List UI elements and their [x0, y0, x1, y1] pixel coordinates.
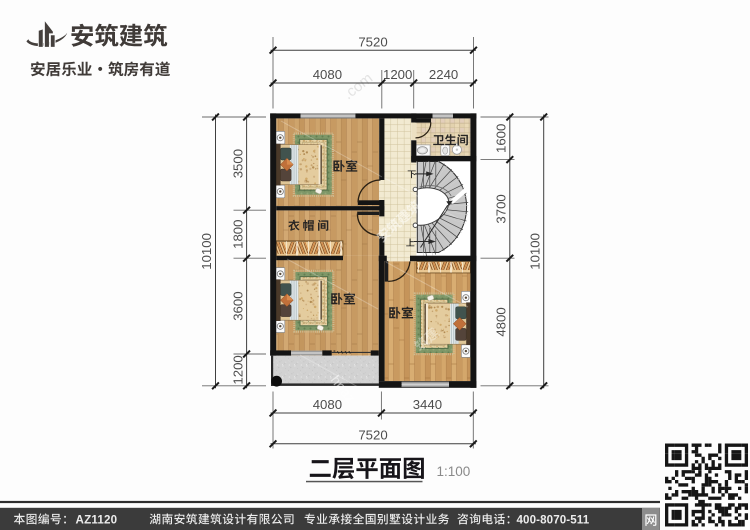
svg-text:400-8070-511: 400-8070-511 [517, 513, 590, 526]
svg-text:4080: 4080 [313, 67, 342, 82]
svg-text:1200: 1200 [230, 355, 245, 384]
svg-text:1200: 1200 [383, 67, 412, 82]
svg-text:1:100: 1:100 [437, 464, 471, 479]
svg-text:4080: 4080 [313, 397, 342, 412]
svg-text:AZ1120: AZ1120 [76, 513, 118, 526]
svg-text:4800: 4800 [493, 307, 508, 336]
svg-text:3440: 3440 [413, 397, 442, 412]
svg-text:10100: 10100 [527, 233, 542, 270]
svg-text:7520: 7520 [358, 35, 387, 50]
svg-text:10100: 10100 [199, 233, 214, 270]
svg-text:7520: 7520 [358, 428, 387, 443]
svg-text:3600: 3600 [230, 291, 245, 320]
svg-text:2240: 2240 [429, 67, 458, 82]
svg-text:3700: 3700 [493, 194, 508, 223]
svg-text:1600: 1600 [493, 124, 508, 153]
svg-text:3500: 3500 [230, 149, 245, 178]
svg-text:1800: 1800 [230, 220, 245, 249]
